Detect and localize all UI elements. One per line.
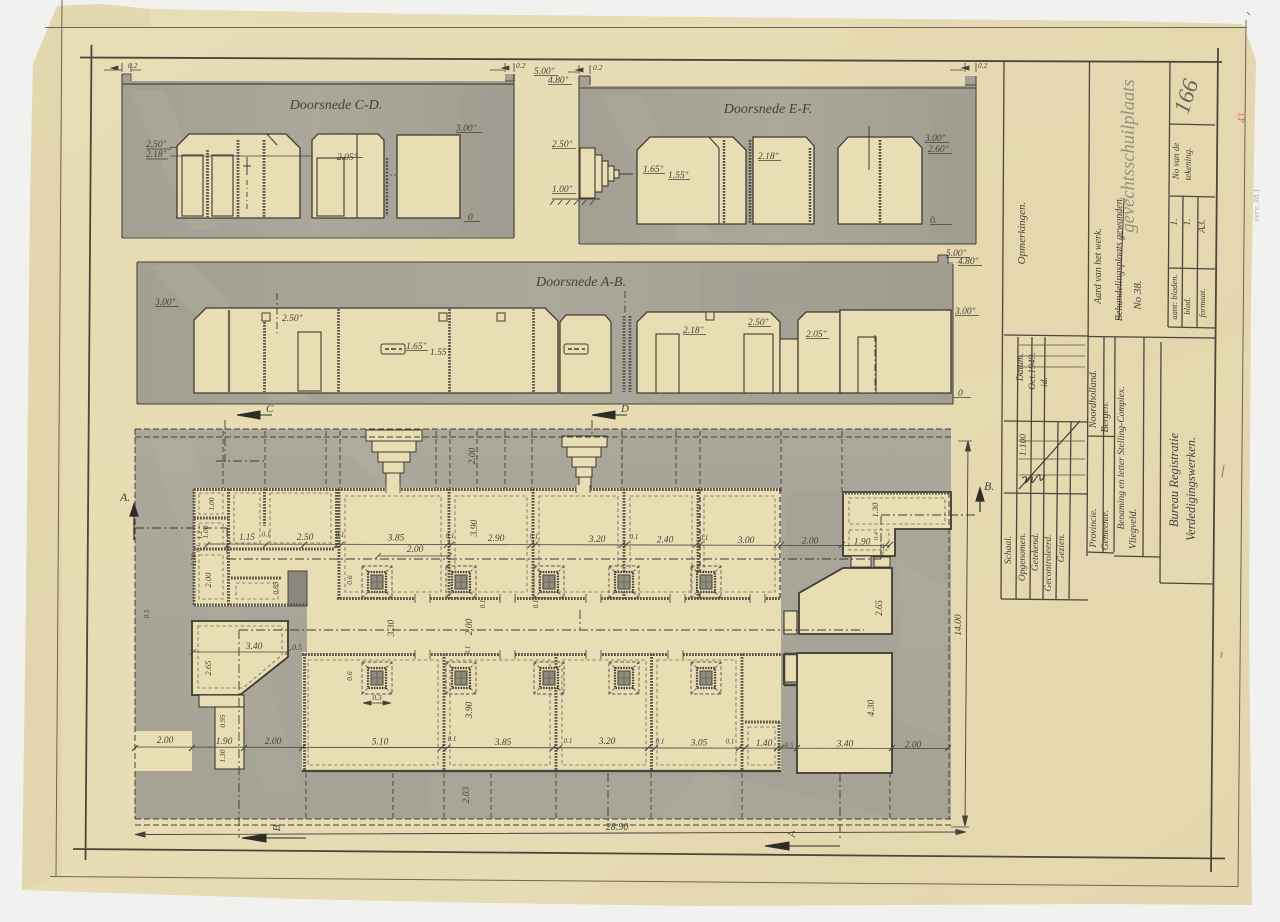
svg-text:A: A xyxy=(786,830,798,838)
svg-text:2.00: 2.00 xyxy=(407,545,424,555)
svg-text:2.40: 2.40 xyxy=(657,536,674,546)
svg-text:3.30: 3.30 xyxy=(387,619,397,637)
svg-text:0.1: 0.1 xyxy=(630,533,639,541)
svg-text:0.2: 0.2 xyxy=(593,63,603,72)
svg-text:1.: 1. xyxy=(1182,219,1192,226)
svg-text:0.: 0. xyxy=(930,216,937,226)
svg-text:0.1: 0.1 xyxy=(532,600,540,609)
svg-text:Provincie.: Provincie. xyxy=(1089,509,1099,549)
svg-text:0.95: 0.95 xyxy=(218,714,227,727)
svg-text:aant: bladen.: aant: bladen. xyxy=(1169,274,1179,319)
svg-text:1.30: 1.30 xyxy=(190,553,198,566)
svg-text:Benaming en letter Stelling-Co: Benaming en letter Stelling-Complex. xyxy=(1117,387,1127,530)
svg-text:0.3: 0.3 xyxy=(372,693,382,702)
svg-text:0.2: 0.2 xyxy=(516,61,526,70)
svg-text:Gemeente.: Gemeente. xyxy=(1101,510,1111,550)
svg-text:0.1: 0.1 xyxy=(700,534,709,542)
svg-text:formaat.: formaat. xyxy=(1197,288,1207,317)
svg-text:blad.: blad. xyxy=(1182,297,1192,314)
svg-text:Getekend.: Getekend. xyxy=(1031,533,1041,571)
svg-text:Gezien.: Gezien. xyxy=(1057,534,1067,563)
svg-text:2.00: 2.00 xyxy=(265,737,282,747)
svg-text:5.10: 5.10 xyxy=(372,738,389,748)
svg-text:0.5: 0.5 xyxy=(292,643,302,652)
svg-text:28.90: 28.90 xyxy=(606,822,629,833)
svg-text:id.: id. xyxy=(1040,377,1050,387)
svg-text:Aard van het werk.: Aard van het werk. xyxy=(1093,228,1104,305)
svg-text:2.00: 2.00 xyxy=(468,447,478,464)
svg-text:14.00: 14.00 xyxy=(954,614,964,636)
svg-text:0.1: 0.1 xyxy=(448,735,457,743)
svg-text:1.90: 1.90 xyxy=(216,737,233,747)
svg-text:No van de: No van de xyxy=(1171,143,1181,181)
svg-text:3.85: 3.85 xyxy=(494,738,512,748)
svg-text:3.90: 3.90 xyxy=(465,701,475,719)
svg-text:3.00: 3.00 xyxy=(737,536,755,546)
svg-text:B.: B. xyxy=(984,479,994,493)
svg-text:0.1: 0.1 xyxy=(564,737,573,745)
svg-text:1.15: 1.15 xyxy=(239,532,255,542)
svg-text:Doorsnede C-D.: Doorsnede C-D. xyxy=(289,98,383,113)
svg-text:1.90: 1.90 xyxy=(854,538,871,548)
svg-text:2.03: 2.03 xyxy=(462,786,472,803)
svg-text:2.90: 2.90 xyxy=(488,534,505,544)
svg-text:3.90: 3.90 xyxy=(470,519,480,537)
svg-text:A.: A. xyxy=(119,490,130,504)
svg-text:tekening.: tekening. xyxy=(1183,148,1193,181)
svg-text:0.2: 0.2 xyxy=(978,61,988,70)
svg-text:0.1: 0.1 xyxy=(479,600,487,609)
svg-text:0.35: 0.35 xyxy=(879,543,886,555)
svg-text:0.2: 0.2 xyxy=(128,61,138,70)
svg-text:0.1: 0.1 xyxy=(336,531,345,539)
svg-text:3.20: 3.20 xyxy=(598,737,616,747)
svg-text:Noordholland.: Noordholland. xyxy=(1088,370,1099,429)
svg-text:1.40: 1.40 xyxy=(756,739,773,749)
svg-text:D: D xyxy=(620,403,629,415)
svg-text:Verdedigingswerken.: Verdedigingswerken. xyxy=(1184,437,1198,541)
svg-text:1:100: 1:100 xyxy=(1019,434,1029,456)
svg-text:2.00: 2.00 xyxy=(905,741,922,751)
svg-text:3.05: 3.05 xyxy=(690,739,708,749)
svg-text:1.30: 1.30 xyxy=(870,502,880,518)
svg-text:2.00: 2.00 xyxy=(203,572,213,588)
svg-text:Doorsnede E-F.: Doorsnede E-F. xyxy=(723,102,812,117)
svg-text:Datum.: Datum. xyxy=(1016,353,1026,382)
svg-text:Doorsnede A-B.: Doorsnede A-B. xyxy=(535,275,626,290)
svg-text:A3.: A3. xyxy=(1197,219,1208,234)
svg-text:0.1: 0.1 xyxy=(726,738,735,746)
svg-text:Bureau Registratie: Bureau Registratie xyxy=(1167,432,1181,527)
svg-text:1.2: 1.2 xyxy=(196,530,204,539)
svg-text:0.85: 0.85 xyxy=(271,581,280,594)
svg-text:2.00: 2.00 xyxy=(157,736,174,746)
svg-text:No 38.: No 38. xyxy=(1132,280,1144,310)
svg-text:0.5: 0.5 xyxy=(143,609,151,618)
svg-text:Gecontroleerd.: Gecontroleerd. xyxy=(1044,534,1054,591)
svg-text:3.20: 3.20 xyxy=(588,535,606,545)
svg-text:1.30: 1.30 xyxy=(218,749,227,762)
svg-text:1.: 1. xyxy=(1169,219,1179,226)
svg-text:3.85: 3.85 xyxy=(387,534,405,544)
svg-text:0.4: 0.4 xyxy=(873,531,880,540)
svg-text:C: C xyxy=(266,403,274,415)
svg-text:B: B xyxy=(271,824,283,831)
svg-text:0.6: 0.6 xyxy=(345,671,354,681)
svg-text:0.1: 0.1 xyxy=(262,531,271,539)
svg-text:43: 43 xyxy=(1237,113,1248,123)
svg-text:2.65: 2.65 xyxy=(874,600,884,616)
svg-text:2.65: 2.65 xyxy=(203,661,213,676)
svg-text:Schaal.: Schaal. xyxy=(1004,536,1014,564)
svg-text:0.6: 0.6 xyxy=(345,575,354,585)
svg-text:Vliegveld.: Vliegveld. xyxy=(1128,509,1139,549)
svg-text:3.40: 3.40 xyxy=(836,740,854,750)
svg-text:0.1: 0.1 xyxy=(464,646,472,655)
svg-text:4.30: 4.30 xyxy=(867,699,877,716)
svg-text:1.00: 1.00 xyxy=(207,497,216,510)
svg-text:2.00: 2.00 xyxy=(802,537,819,547)
svg-text:0.5: 0.5 xyxy=(784,741,794,750)
svg-text:0.1: 0.1 xyxy=(446,532,455,540)
svg-text:Opgenomen.: Opgenomen. xyxy=(1018,533,1028,581)
svg-text:Oct.1949.: Oct.1949. xyxy=(1028,352,1038,389)
svg-text:0.1: 0.1 xyxy=(530,533,539,541)
svg-text:0.1: 0.1 xyxy=(656,738,665,746)
svg-text:Bergen.: Bergen. xyxy=(1100,401,1111,432)
svg-text:2.00: 2.00 xyxy=(465,618,475,635)
svg-text:verv. 38.1: verv. 38.1 xyxy=(1251,188,1261,221)
svg-text:3.40: 3.40 xyxy=(245,642,263,652)
svg-text:2.50: 2.50 xyxy=(297,533,314,543)
svg-text:0.1: 0.1 xyxy=(195,544,202,552)
svg-text:Opmerkingen.: Opmerkingen. xyxy=(1016,202,1028,265)
svg-text:gevechtsschuilplaats: gevechtsschuilplaats xyxy=(1119,79,1139,232)
